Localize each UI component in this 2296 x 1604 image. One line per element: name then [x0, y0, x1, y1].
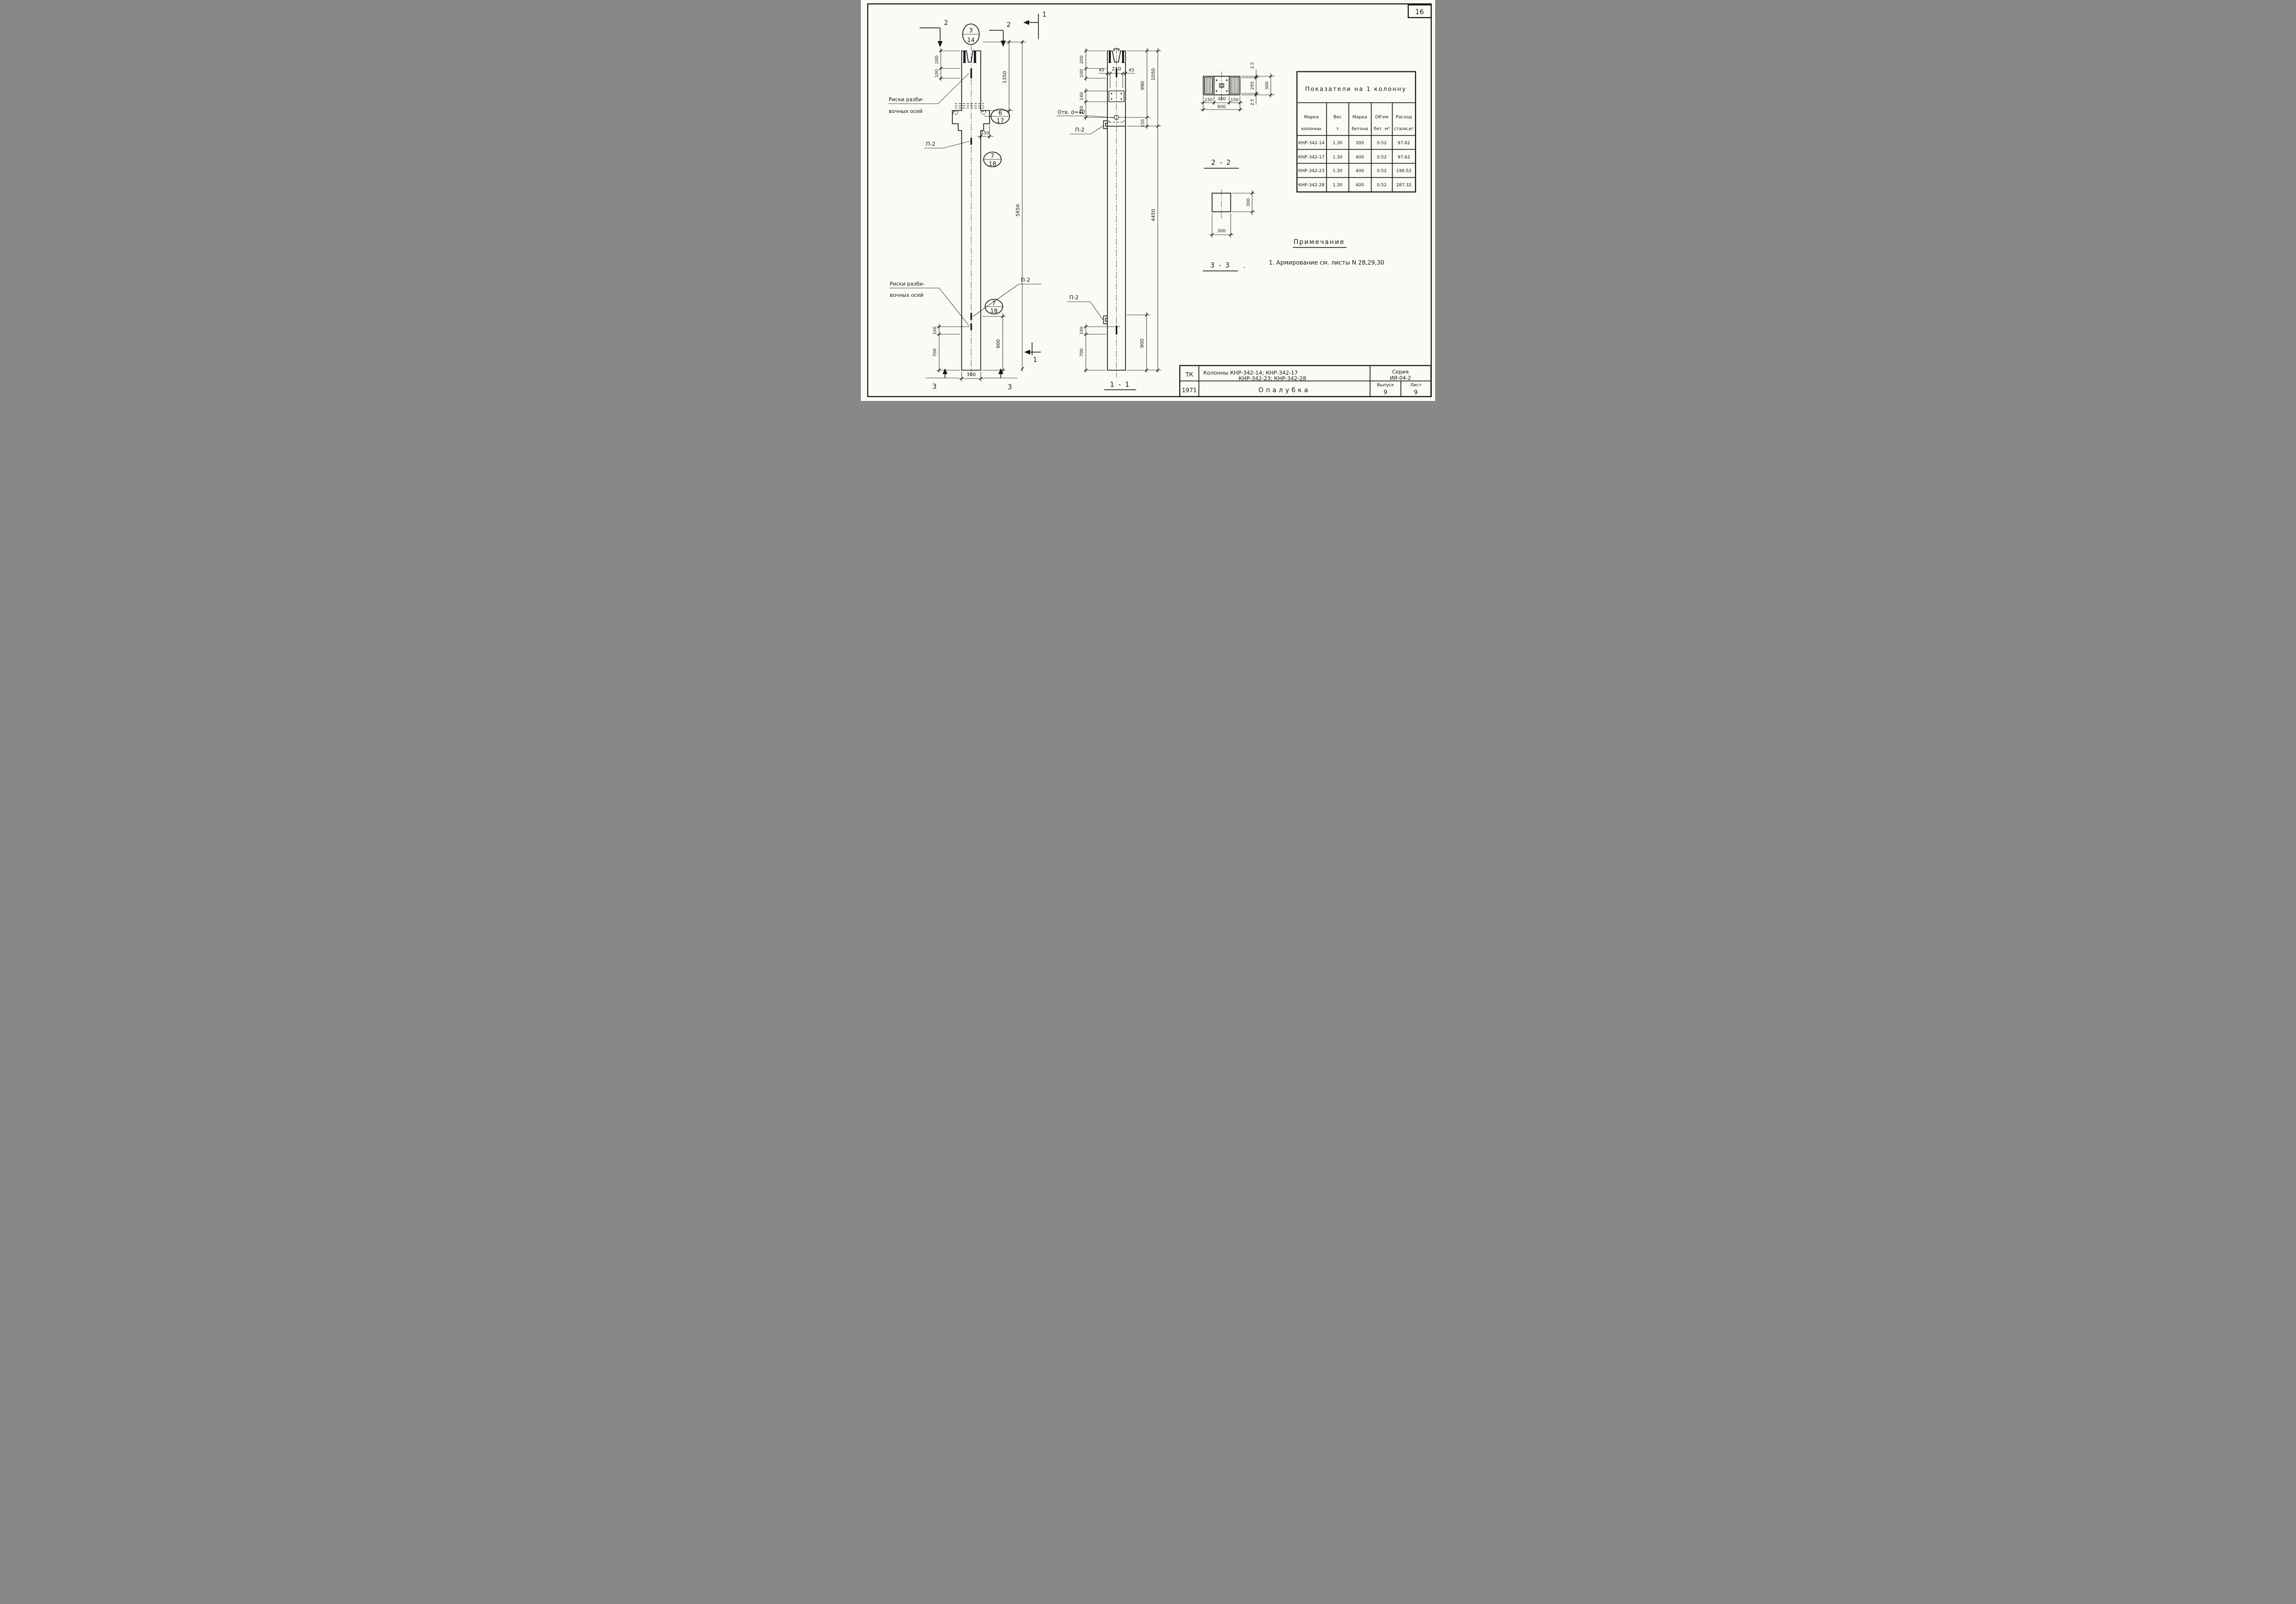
- form-board-hatched: [1205, 78, 1213, 94]
- cell: 1.30: [1332, 183, 1342, 188]
- dim-600: 600: [1217, 105, 1226, 110]
- cell: КНР-342-28: [1298, 183, 1325, 188]
- label-p2: П-2: [1075, 127, 1084, 133]
- section-title: 3 - 3: [1210, 262, 1231, 269]
- balloon-6-17: 6 17: [984, 109, 1010, 124]
- dims-top-left: 200 100: [1080, 48, 1106, 81]
- arrow-down-icon: [938, 41, 943, 47]
- dims-bottom: 150 300 150 600: [1200, 96, 1243, 111]
- balloon-den: 18: [990, 308, 997, 314]
- label-p2: П-2: [1069, 294, 1079, 301]
- header-cell: Вес: [1333, 115, 1342, 120]
- label-p2: П-2: [1021, 277, 1030, 283]
- console-notch: [953, 111, 958, 114]
- section-2-2: 150 300 150 600 2.5 295 2.5 300 2 - 2: [1200, 62, 1275, 168]
- section-title-2-2: 2 - 2: [1204, 159, 1238, 168]
- dims-right: 990 150 1050 4450 900: [1127, 48, 1161, 373]
- table-headers: Марка колонны Вес т Марка бетона Об'ем б…: [1301, 115, 1414, 132]
- dim-150: 150: [981, 131, 989, 136]
- indicators-table: Показатели на 1 колонну Марка колонны Ве…: [1297, 72, 1416, 192]
- dims-right-height: 1350 5650: [983, 40, 1026, 372]
- label-p2-upper: П-2: [924, 141, 969, 148]
- dim-700: 700: [933, 348, 938, 356]
- cell: 400: [1355, 183, 1364, 188]
- cut-mark-2a: 2: [944, 20, 948, 27]
- p2-hook-upper: [1103, 121, 1107, 129]
- section-title: 2 - 2: [1211, 159, 1232, 167]
- arrow-down-icon: [1001, 41, 1006, 47]
- arrow-up-icon: [998, 368, 1003, 374]
- sheet-title: Опалубка: [1259, 387, 1311, 394]
- dim-console-150: 150: [977, 125, 993, 139]
- dim-700: 700: [1080, 348, 1084, 356]
- series-value: ИИ-04-2: [1390, 376, 1411, 381]
- dims-bottom-left: 100 700: [1080, 324, 1120, 373]
- dims-right: 2.5 295 2.5 300: [1241, 62, 1275, 106]
- dim-900: 900: [1140, 338, 1145, 348]
- dim-150: 150: [1231, 98, 1238, 103]
- dim-100: 100: [935, 69, 940, 77]
- dim-990: 990: [1140, 81, 1146, 90]
- view-title: 1 - 1: [1110, 381, 1130, 389]
- dim-300: 300: [967, 372, 976, 378]
- label-p2-lower: П-2: [1067, 294, 1103, 320]
- issue-label: Выпуск: [1377, 383, 1394, 388]
- dim-150: 150: [1141, 119, 1146, 127]
- cell: 0.52: [1377, 169, 1387, 174]
- cell: КНР-342-23: [1298, 169, 1325, 174]
- cell: 196.52: [1396, 169, 1412, 174]
- header-cell: бет. м³: [1374, 127, 1390, 132]
- dim-2-5: 2.5: [1250, 62, 1255, 69]
- dim-900: 900: [982, 313, 1006, 373]
- balloon-den: 17: [996, 117, 1004, 124]
- label-p2: П-2: [926, 141, 935, 147]
- label-line: вочных осей: [889, 109, 923, 114]
- column-outline: [952, 51, 990, 370]
- section-title-3-3: 3 - 3 .: [1203, 262, 1245, 271]
- middle-section-view: 200 100 45 210 45 140 230 990: [1057, 47, 1161, 390]
- cell: 97.62: [1397, 155, 1410, 160]
- series-label: Серия: [1392, 369, 1409, 375]
- cell: 287.32: [1396, 183, 1412, 188]
- left-elevation-view: 3 14 6 17 7 18 7 18 20: [888, 24, 1041, 381]
- header-cell: Об'ем: [1375, 115, 1388, 120]
- dim-200: 200: [935, 55, 940, 64]
- subject-line2: КНР-342-23; КНР-342-28: [1238, 376, 1306, 382]
- dim-45: 45: [1128, 68, 1134, 73]
- console-notch: [981, 111, 986, 114]
- cell: 0.52: [1377, 155, 1387, 160]
- dim-1050: 1050: [1151, 68, 1156, 80]
- cut-mark-1-bottom: 1: [1033, 356, 1037, 364]
- cell: 0.52: [1377, 183, 1387, 188]
- header-cell: Марка: [1304, 115, 1319, 120]
- balloon-7-18-upper: 7 18: [984, 152, 1001, 167]
- cell: 300: [1355, 141, 1364, 146]
- label-otv: Отв. d=40: [1058, 110, 1085, 115]
- balloon-num: 3: [969, 27, 973, 34]
- label-p2-lower: П-2: [973, 277, 1041, 316]
- header-cell: т: [1336, 127, 1339, 132]
- cut-mark-3b: 3: [1008, 383, 1012, 391]
- dim-300: 300: [1217, 229, 1225, 234]
- title-block: ТК 1971 Колонны КНР-342-14; КНР-342-17 К…: [1180, 366, 1431, 397]
- balloon-num: 7: [990, 153, 994, 159]
- cell: 400: [1355, 155, 1364, 160]
- cut-mark-1-top: 1: [1042, 11, 1046, 19]
- notes-title: Примечание: [1294, 239, 1345, 246]
- dims-bottom-left: 100 700: [933, 324, 969, 373]
- dim-4450: 4450: [1151, 209, 1156, 221]
- dim-295: 295: [1250, 81, 1255, 89]
- label-riski-bottom: Риски разби- вочных осей: [889, 281, 969, 326]
- table-rows: КНР-342-14 1.30 300 0.52 97.62 КНР-342-1…: [1298, 141, 1412, 188]
- dim-1350: 1350: [1002, 71, 1008, 83]
- cut-mark-2b: 2: [1007, 22, 1011, 29]
- table-title: Показатели на 1 колонну: [1305, 86, 1406, 92]
- cell: 1.30: [1332, 169, 1342, 174]
- label-line: Риски разби-: [890, 281, 924, 287]
- dims-top-left: 200 100: [935, 48, 960, 81]
- arrow-left-icon: [1023, 20, 1029, 25]
- dim-45: 45: [1099, 68, 1104, 73]
- dim-100: 100: [1080, 327, 1084, 334]
- cell: 400: [1355, 169, 1364, 174]
- sheet-frame: 16: [868, 4, 1431, 397]
- list-value: 9: [1414, 389, 1418, 396]
- dim-300: 300: [1246, 198, 1251, 206]
- dims-140-230: 140 230: [1080, 88, 1113, 120]
- label-otv-d40: Отв. d=40: [1057, 110, 1114, 118]
- dim-100: 100: [1080, 69, 1084, 77]
- cell: 1.30: [1332, 155, 1342, 160]
- org-code: ТК: [1185, 371, 1193, 378]
- balloon-den: 14: [967, 37, 974, 44]
- dims: 300 300: [1209, 190, 1255, 238]
- fork-bar: [964, 51, 966, 63]
- header-cell: колонны: [1301, 127, 1321, 132]
- cell: 97.62: [1397, 141, 1410, 146]
- page-number: 16: [1415, 8, 1424, 16]
- fork-bar: [1122, 51, 1124, 63]
- form-board-hatched: [1231, 78, 1239, 94]
- joint-dashes: [955, 104, 984, 108]
- label-line: вочных осей: [890, 292, 923, 298]
- arrow-up-icon: [943, 368, 947, 374]
- riska-mark: [1116, 326, 1117, 334]
- header-cell: Марка: [1352, 115, 1367, 120]
- cell: КНР-342-17: [1298, 155, 1325, 160]
- dim-300-bottom: 300: [958, 372, 985, 381]
- section-3-3: 300 300 3 - 3 .: [1203, 189, 1255, 271]
- view-title-1-1: 1 - 1: [1104, 381, 1136, 390]
- dim-200: 200: [1080, 55, 1084, 64]
- label-line: Риски разби-: [889, 97, 923, 103]
- list-label: Лист: [1410, 383, 1421, 388]
- blueprint-svg: 16 2 2 1 1 3 3: [861, 0, 1435, 401]
- label-p2-upper: П-2: [1070, 126, 1103, 134]
- cell: КНР-342-14: [1298, 141, 1325, 146]
- dim-100: 100: [933, 327, 938, 334]
- arrow-left-icon: [1024, 350, 1030, 355]
- cell: 1.30: [1332, 141, 1342, 146]
- drawing-sheet: 16 2 2 1 1 3 3: [861, 0, 1435, 401]
- dim-210: 210: [1112, 67, 1121, 72]
- fork-bar: [1109, 51, 1111, 63]
- header-cell: Расход: [1396, 115, 1412, 120]
- cell: 0.52: [1377, 141, 1387, 146]
- dim-300: 300: [1265, 81, 1270, 89]
- dim-150: 150: [1205, 98, 1213, 103]
- p2-hook-lower: [1103, 316, 1107, 324]
- dim-900: 900: [996, 339, 1001, 348]
- note-item: 1. Армирование см. листы N 28,29,30: [1269, 259, 1384, 266]
- balloon-den: 18: [989, 160, 996, 167]
- dim-2-5: 2.5: [1250, 99, 1255, 106]
- year: 1971: [1182, 387, 1197, 394]
- fork-bar: [974, 51, 976, 63]
- cut-mark-3a: 3: [932, 383, 937, 391]
- header-cell: стали,кг: [1394, 127, 1414, 132]
- balloon-3-14: 3 14: [963, 24, 979, 45]
- dim-140: 140: [1080, 92, 1084, 100]
- issue-value: 9: [1384, 389, 1388, 396]
- dim-300: 300: [1217, 97, 1226, 102]
- header-cell: бетона: [1351, 127, 1368, 132]
- notes: Примечание 1. Армирование см. листы N 28…: [1269, 239, 1384, 266]
- stray-period: .: [1243, 262, 1245, 270]
- dim-5650: 5650: [1015, 204, 1021, 216]
